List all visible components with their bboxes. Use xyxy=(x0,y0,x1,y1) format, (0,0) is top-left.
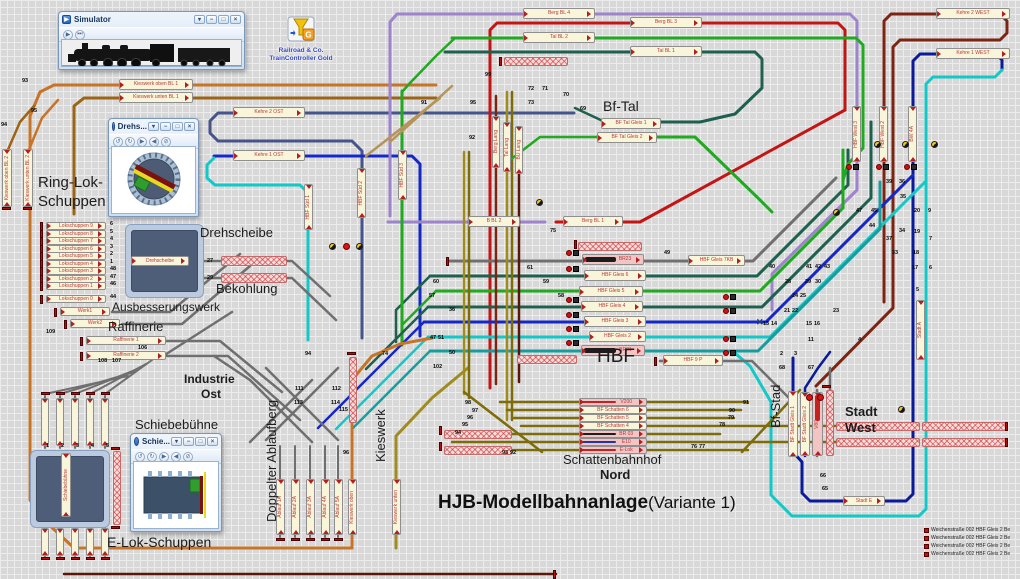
legend-row[interactable]: Weichenstraße 002 HBF Gleis 2 Be xyxy=(924,550,1010,558)
buffer-stop xyxy=(86,392,95,395)
track-block[interactable] xyxy=(836,438,920,447)
legend-row[interactable]: Weichenstraße 002 HBF Gleis 2 Be xyxy=(924,526,1010,534)
track-block[interactable] xyxy=(517,355,577,364)
block-label: B BL 2 xyxy=(487,219,502,224)
turnout-number: 23 xyxy=(833,308,839,314)
block-entry-marker xyxy=(664,358,671,364)
block-label: Stadt E xyxy=(856,499,872,504)
signal-icon[interactable] xyxy=(833,209,840,216)
block-exit-marker xyxy=(306,222,312,229)
signal-red-icon[interactable] xyxy=(343,243,350,250)
track-block[interactable] xyxy=(71,398,79,446)
track-block-lokschuppen-7[interactable]: Lokschuppen 7 xyxy=(46,237,106,245)
turnout-number: 102 xyxy=(433,364,442,370)
signal-icon[interactable] xyxy=(874,141,881,148)
turnout-number: 3 xyxy=(794,351,797,357)
block-label: HBF Süd 1 xyxy=(306,195,311,219)
block-exit-marker xyxy=(615,219,622,225)
block-label: Lokschuppen 1 xyxy=(59,284,93,289)
track-block-kehre-2-west[interactable]: Kehre 2 WEST xyxy=(936,8,1010,19)
area-label-nord: Nord xyxy=(600,467,630,482)
occupancy-indicator-icon xyxy=(846,164,852,170)
track-block-lokschuppen-0[interactable]: Lokschuppen 0 xyxy=(46,295,106,303)
simulator-window-title: Simulator xyxy=(74,15,193,24)
track-block-bf-stadt-gleis-1[interactable]: BF Stadt Gleis 1 xyxy=(788,391,798,457)
block-exit-marker xyxy=(653,121,660,127)
track-block-kieswerk-oben-bl-2[interactable]: Kieswerk oben BL 2 xyxy=(2,149,12,207)
toolbar-button-3[interactable]: ◀ xyxy=(149,137,159,147)
buffer-stop xyxy=(439,426,442,435)
turnout-number: 4 xyxy=(91,443,94,449)
window-menu-button[interactable]: ▾ xyxy=(171,437,182,446)
block-exit-marker xyxy=(25,199,31,206)
window-close-button[interactable]: × xyxy=(230,15,241,24)
block-label: HBF Süd 2 xyxy=(359,181,364,205)
area-label-ring-lok-: Ring-Lok- xyxy=(38,174,103,191)
track-block-werk1[interactable]: Werk1 xyxy=(60,307,110,316)
track-block[interactable] xyxy=(41,528,49,556)
turnout-number: 97 xyxy=(472,408,478,414)
track-block-v80[interactable]: V80 xyxy=(812,392,823,456)
track-block-b-bl-2[interactable]: B BL 2 xyxy=(468,216,520,227)
toolbar-button-4[interactable]: ⊘ xyxy=(183,452,193,462)
track-block-br-03[interactable]: BR 03 xyxy=(579,430,647,438)
turnout-number: 115 xyxy=(339,407,348,413)
buffer-stop xyxy=(40,282,43,291)
block-indicator[interactable] xyxy=(566,250,579,256)
route-flag-icon xyxy=(924,552,929,557)
track-block-hbf-9-p[interactable]: HBF 9 P xyxy=(663,355,723,366)
block-exit-marker xyxy=(87,548,93,555)
area-label-raffinerie: Raffinerie xyxy=(108,319,163,334)
block-exit-marker xyxy=(638,273,645,279)
transfer-titlebar[interactable]: Schie... ▾−□× xyxy=(131,434,221,449)
track-block-berg-bl-3[interactable]: Berg BL 3 xyxy=(630,17,702,28)
turnout-number: 107 xyxy=(112,358,121,364)
turnout-number: 48 xyxy=(110,266,116,272)
track-segment-10[interactable] xyxy=(556,110,845,222)
track-block-kehre-1-west[interactable]: Kehre 1 WEST xyxy=(936,48,1010,59)
block-indicator[interactable] xyxy=(566,297,579,303)
block-entry-marker xyxy=(87,529,93,536)
track-block-ablauf-4a[interactable]: Ablauf 4A xyxy=(321,479,330,535)
block-exit-marker xyxy=(802,448,808,455)
track-segment-13[interactable] xyxy=(926,70,1002,462)
block-entry-marker xyxy=(580,289,587,295)
track-segment-25[interactable] xyxy=(430,182,880,351)
track-block-bw-4a[interactable]: BW 4A xyxy=(908,106,917,162)
track-block-drehscheibe[interactable]: Drehscheibe xyxy=(131,256,189,266)
track-block-kieswerk-unten-bl-1[interactable]: Kieswerk unten BL 1 xyxy=(119,92,193,103)
block-exit-marker xyxy=(854,154,860,161)
block-entry-marker xyxy=(57,529,63,536)
block-indicator[interactable] xyxy=(846,164,859,170)
track-segment-56[interactable] xyxy=(160,312,232,358)
turnout-number: 74 xyxy=(382,351,388,357)
block-label: Ablauf 5A xyxy=(336,496,341,518)
track-block-bf-tal-gleis-1[interactable]: BF Tal Gleis 1 xyxy=(601,118,661,129)
brake-indicator-icon xyxy=(730,336,736,342)
locomotive-icon xyxy=(582,449,616,451)
block-label: V200 xyxy=(620,400,632,405)
locomotive-icon xyxy=(582,441,616,443)
turntable-window[interactable]: Drehs... ▾−□× ↺↻▶◀⊘ xyxy=(108,118,199,217)
block-label: Tal BL 1 xyxy=(657,49,675,54)
buffer-stop xyxy=(41,557,50,560)
block-entry-marker xyxy=(61,309,68,315)
buffer-stop xyxy=(291,538,300,541)
block-entry-marker xyxy=(585,273,592,279)
buffer-stop xyxy=(54,308,57,317)
block-entry-marker xyxy=(42,529,48,536)
block-entry-marker xyxy=(602,121,609,127)
area-label-industrie: Industrie xyxy=(184,372,235,386)
turnout-number: 96 xyxy=(467,415,473,421)
track-block-stadt-e[interactable]: Stadt E xyxy=(843,496,885,506)
track-block[interactable] xyxy=(56,528,64,556)
turnout-number: 92 xyxy=(510,450,516,456)
track-block-lokschuppen-5[interactable]: Lokschuppen 5 xyxy=(46,252,106,260)
track-block[interactable] xyxy=(504,57,568,66)
track-block-hbf-süd-2[interactable]: HBF Süd 2 xyxy=(357,168,366,218)
track-block-kieswerk-oben[interactable]: Kieswerk oben xyxy=(348,479,357,535)
block-exit-marker xyxy=(910,154,916,161)
track-block-lokschuppen-3[interactable]: Lokschuppen 3 xyxy=(46,267,106,275)
block-exit-marker xyxy=(98,296,105,302)
block-exit-marker xyxy=(42,548,48,555)
block-label: Lokschuppen 3 xyxy=(59,269,93,274)
legend-row-label: Weichenstraße 002 HBF Gleis 2 Be xyxy=(931,551,1010,557)
track-block-ablauf-3a[interactable]: Ablauf 3A xyxy=(306,479,315,535)
block-entry-marker xyxy=(469,219,476,225)
occupancy-indicator-icon xyxy=(566,266,572,272)
track-block-bf-stadt-gleis-2[interactable]: BF Stadt Gleis 2 xyxy=(800,392,810,456)
area-label-e-lok-schuppen: E-Lok-Schuppen xyxy=(107,534,211,550)
block-label: Tal Lang xyxy=(505,138,510,157)
turnout-number: 108 xyxy=(98,358,107,364)
track-block-hbf-gleis-5[interactable]: HBF Gleis 5 xyxy=(579,286,643,297)
track-block[interactable] xyxy=(41,398,49,446)
area-label-west: West xyxy=(845,420,876,435)
toolbar-button-0[interactable]: ↺ xyxy=(113,137,123,147)
block-label: BR23 xyxy=(619,257,632,262)
legend-row[interactable]: Weichenstraße 002 HBF Gleis 2 Be xyxy=(924,542,1010,550)
block-entry-marker xyxy=(359,169,365,176)
track-segment-6[interactable] xyxy=(207,158,308,340)
track-segment-23[interactable] xyxy=(424,175,913,322)
route-legend: Weichenstraße 002 HBF Gleis 2 BeWeichens… xyxy=(924,526,1010,558)
legend-row-label: Weichenstraße 002 HBF Gleis 2 Be xyxy=(931,535,1010,541)
block-label: Lokschuppen 4 xyxy=(59,262,93,267)
block-entry-marker xyxy=(590,334,597,340)
block-entry-marker xyxy=(57,399,63,406)
track-block[interactable] xyxy=(56,398,64,446)
track-block-hbf-gleis-6[interactable]: HBF Gleis 6 xyxy=(584,270,646,281)
track-block[interactable] xyxy=(922,438,1006,447)
window-close-button[interactable]: × xyxy=(184,122,195,131)
signal-icon[interactable] xyxy=(356,243,363,250)
traincontroller-desktop-icon[interactable]: G Railroad & Co. TrainController Gold xyxy=(255,16,347,63)
track-block-hbf-gleis-7kb[interactable]: HBF Gleis 7KB xyxy=(688,255,745,266)
signal-icon[interactable] xyxy=(536,199,543,206)
track-block-e10[interactable]: E10 xyxy=(579,438,647,446)
buffer-stop xyxy=(101,392,110,395)
block-label: BF Stadt Gleis 1 xyxy=(791,406,796,442)
block-label: HBF 9 P xyxy=(684,358,703,363)
toolbar-button-1[interactable]: ↻ xyxy=(147,452,157,462)
track-block[interactable] xyxy=(922,422,1006,431)
buffer-stop xyxy=(1005,438,1008,447)
block-entry-marker xyxy=(937,11,944,17)
transfer-table-graphic xyxy=(134,462,219,528)
block-label: Stadt A xyxy=(918,322,923,338)
buffer-stop xyxy=(654,357,657,366)
block-label: HBF Gleis 2 xyxy=(604,334,631,339)
track-block[interactable] xyxy=(113,451,121,525)
brake-indicator-icon xyxy=(853,164,859,170)
block-exit-marker xyxy=(63,509,69,516)
window-maximize-button[interactable]: □ xyxy=(218,15,229,24)
turnout-number: 65 xyxy=(822,486,828,492)
crossing-icon[interactable]: ✕ xyxy=(756,318,764,327)
window-menu-button[interactable]: ▾ xyxy=(148,122,159,131)
window-close-button[interactable]: × xyxy=(207,437,218,446)
turnout-number: 99 xyxy=(485,72,491,78)
track-block-hbf-gleis-3[interactable]: HBF Gleis 3 xyxy=(584,316,646,327)
track-block[interactable] xyxy=(221,256,287,266)
block-indicator[interactable] xyxy=(566,326,579,332)
track-block-berg-bl-1[interactable]: Berg BL 1 xyxy=(563,216,623,227)
toolbar-button-2[interactable]: ▶ xyxy=(137,137,147,147)
track-block-bf-schatten-4[interactable]: BF Schatten 4 xyxy=(579,422,647,430)
track-block-kehre-1-ost[interactable]: Kehre 1 OST xyxy=(233,150,305,161)
turntable-window-title: Drehs... xyxy=(118,122,147,131)
buffer-stop xyxy=(56,557,65,560)
turnout-number: 9 xyxy=(928,208,931,214)
block-label: BF Schatten 6 xyxy=(597,408,629,413)
turnout-number: 36 xyxy=(899,179,905,185)
track-block-tal-lang[interactable]: Tal Lang xyxy=(503,122,511,172)
track-block-bü-lang[interactable]: BÜ Lang xyxy=(515,126,523,174)
block-entry-marker xyxy=(87,338,94,344)
toolbar-button-2[interactable]: ▶ xyxy=(159,452,169,462)
transfer-view[interactable] xyxy=(133,461,219,529)
turnout-number: 21 xyxy=(784,308,790,314)
block-label: Lokschuppen 9 xyxy=(59,224,93,229)
signal-icon[interactable] xyxy=(329,243,336,250)
track-block-ablauf-2a[interactable]: Ablauf 2A xyxy=(291,479,300,535)
block-exit-marker xyxy=(649,135,656,141)
block-entry-marker xyxy=(631,20,638,26)
track-block-v200[interactable]: V200 xyxy=(579,398,647,406)
window-minimize-button[interactable]: − xyxy=(206,15,217,24)
svg-text:G: G xyxy=(305,31,311,40)
turnout-number: 16 xyxy=(814,321,820,327)
block-exit-marker xyxy=(359,210,365,217)
track-block-lokschuppen-1[interactable]: Lokschuppen 1 xyxy=(46,282,106,290)
track-block[interactable] xyxy=(349,357,357,423)
track-block-tal-bl-2[interactable]: Tal BL 2 xyxy=(523,32,595,43)
turnout-number: 47 xyxy=(430,335,436,341)
block-entry-marker xyxy=(42,399,48,406)
block-entry-marker xyxy=(102,399,108,406)
turnout-number: 94 xyxy=(1,122,7,128)
block-entry-marker xyxy=(585,319,592,325)
block-exit-marker xyxy=(881,154,887,161)
window-maximize-button[interactable]: □ xyxy=(195,437,206,446)
locomotive-icon xyxy=(582,433,616,435)
window-maximize-button[interactable]: □ xyxy=(172,122,183,131)
signal-icon[interactable] xyxy=(898,406,905,413)
block-label: Kieswerk oben xyxy=(350,491,355,524)
block-exit-marker xyxy=(293,527,299,534)
track-block-kieswerk-unten[interactable]: Kieswerk unten xyxy=(392,479,401,535)
track-segment-33[interactable] xyxy=(352,351,430,429)
occupancy-indicator-icon xyxy=(723,336,729,342)
track-block-hbf-gleis-2[interactable]: HBF Gleis 2 xyxy=(589,331,646,342)
track-block-schiebebühne[interactable]: Schiebebühne xyxy=(61,453,71,517)
track-block[interactable] xyxy=(578,242,642,251)
track-block[interactable] xyxy=(86,528,94,556)
track-block-hbf-west-2[interactable]: HBF West 2 xyxy=(879,106,888,162)
block-entry-marker xyxy=(308,480,314,487)
block-exit-marker xyxy=(185,82,192,88)
signal-icon[interactable] xyxy=(902,141,909,148)
buffer-stop xyxy=(64,320,67,329)
track-block-bf-schatten-5[interactable]: BF Schatten 5 xyxy=(579,414,647,422)
track-block-tal-bl-1[interactable]: Tal BL 1 xyxy=(630,46,702,57)
block-indicator[interactable] xyxy=(723,308,736,314)
toolbar-button-3[interactable]: ◀ xyxy=(171,452,181,462)
occupancy-indicator-icon xyxy=(566,250,572,256)
toolbar-button-1[interactable]: ↻ xyxy=(125,137,135,147)
block-exit-marker xyxy=(516,166,522,173)
block-entry-marker xyxy=(47,223,54,229)
track-block-ablauf-5a[interactable]: Ablauf 5A xyxy=(334,479,343,535)
track-block-kieswerk-oben-bl-1[interactable]: Kieswerk oben BL 1 xyxy=(119,79,193,90)
block-exit-marker xyxy=(102,309,109,315)
block-entry-marker xyxy=(120,95,127,101)
turnout-number: 4 xyxy=(110,236,113,242)
buffer-stop xyxy=(111,447,120,450)
track-block-kehre-2-ost[interactable]: Kehre 2 OST xyxy=(233,107,305,118)
area-label-schiebebühne: Schiebebühne xyxy=(135,417,218,432)
block-label: BF Schatten 5 xyxy=(597,416,629,421)
window-menu-button[interactable]: ▾ xyxy=(194,15,205,24)
track-block-raffinerie-1[interactable]: Raffinerie 1 xyxy=(86,336,166,345)
block-exit-marker xyxy=(635,304,642,310)
turnout-number: 19 xyxy=(914,229,920,235)
transfer-table-window[interactable]: Schie... ▾−□× ↺↻▶◀⊘ xyxy=(130,433,222,532)
block-exit-marker xyxy=(493,160,499,167)
block-indicator[interactable] xyxy=(566,340,579,346)
signal-icon[interactable] xyxy=(931,141,938,148)
track-block[interactable] xyxy=(826,390,834,456)
block-entry-marker xyxy=(293,480,299,487)
window-minimize-button[interactable]: − xyxy=(160,122,171,131)
block-indicator[interactable] xyxy=(566,266,579,272)
track-block[interactable] xyxy=(101,398,109,446)
block-entry-marker xyxy=(564,219,571,225)
track-block-bf-tal-gleis-2[interactable]: BF Tal Gleis 2 xyxy=(597,132,657,143)
track-block-berg-bl-4[interactable]: Berg BL 4 xyxy=(523,8,595,19)
block-indicator[interactable] xyxy=(723,294,736,300)
simulator-titlebar[interactable]: ▶ Simulator ▾−□× xyxy=(59,12,244,27)
block-indicator[interactable] xyxy=(904,164,917,170)
block-label: Lokschuppen 8 xyxy=(59,232,93,237)
track-block[interactable] xyxy=(71,528,79,556)
legend-row[interactable]: Weichenstraße 002 HBF Gleis 2 Be xyxy=(924,534,1010,542)
track-block-hbf-süd-1[interactable]: HBF Süd 1 xyxy=(304,184,313,230)
toolbar-button-0[interactable]: ▶ xyxy=(63,30,73,40)
block-indicator[interactable] xyxy=(723,336,736,342)
block-entry-marker xyxy=(63,454,69,461)
block-label: Kieswerk unten BL 1 xyxy=(133,95,179,100)
trackplan-canvas[interactable]: HJB-Modellbahnanlage (Variante 1) Weiche… xyxy=(0,0,1020,579)
turnout-number: 29 xyxy=(805,279,811,285)
block-exit-marker xyxy=(694,49,701,55)
transfer-window-controls: ▾−□× xyxy=(170,437,218,446)
turnout-number: 60 xyxy=(433,279,439,285)
track-block-hbf-süd-3[interactable]: HBF Süd 3 xyxy=(398,150,407,200)
layout-title-variant: (Variante 1) xyxy=(648,493,736,513)
track-block-berg-lang[interactable]: Berg Lang xyxy=(492,116,500,168)
track-block[interactable] xyxy=(86,398,94,446)
toolbar-button-1[interactable]: ⏭ xyxy=(75,30,85,40)
buffer-stop xyxy=(446,257,449,266)
block-label: Kieswerk unten xyxy=(394,490,399,524)
window-minimize-button[interactable]: − xyxy=(183,437,194,446)
turnout-number: 73 xyxy=(528,100,534,106)
block-indicator[interactable] xyxy=(723,350,736,356)
buffer-stop xyxy=(553,570,556,579)
signal-red-icon[interactable] xyxy=(817,394,824,401)
track-block-br23[interactable]: BR23 xyxy=(582,254,644,265)
block-indicator[interactable] xyxy=(876,164,889,170)
simulator-window[interactable]: ▶ Simulator ▾−□× ▶⏭ xyxy=(58,11,245,70)
brake-indicator-icon xyxy=(730,350,736,356)
block-indicator[interactable] xyxy=(566,312,579,318)
track-segment-45[interactable] xyxy=(597,137,772,212)
track-block-kieswerk-unten-bl-2[interactable]: Kieswerk unten BL 2 xyxy=(23,149,33,207)
toolbar-button-0[interactable]: ↺ xyxy=(135,452,145,462)
track-block-lokschuppen-9[interactable]: Lokschuppen 9 xyxy=(46,222,106,230)
signal-red-icon[interactable] xyxy=(806,394,813,401)
track-block-stadt-a[interactable]: Stadt A xyxy=(916,300,925,360)
track-block-hbf-gleis-4[interactable]: HBF Gleis 4 xyxy=(581,301,643,312)
block-label: Ablauf 4A xyxy=(323,496,328,518)
block-entry-marker xyxy=(120,82,127,88)
track-segment-35[interactable] xyxy=(396,368,468,548)
toolbar-button-4[interactable]: ⊘ xyxy=(161,137,171,147)
track-block-bf-schatten-6[interactable]: BF Schatten 6 xyxy=(579,406,647,414)
turntable-titlebar[interactable]: Drehs... ▾−□× xyxy=(109,119,198,134)
turnout-number: 7 xyxy=(929,236,932,242)
turnout-number: 4 xyxy=(858,337,861,343)
track-segment-31[interactable] xyxy=(318,322,424,428)
turnout-number: 68 xyxy=(779,365,785,371)
turnout-number: 94 xyxy=(455,430,461,436)
track-block-hbf-west-3[interactable]: HBF West 3 xyxy=(852,106,861,162)
route-flag-icon xyxy=(924,536,929,541)
block-label: Ablauf 3A xyxy=(308,496,313,518)
block-exit-marker xyxy=(350,527,356,534)
block-entry-marker xyxy=(47,268,54,274)
track-segment-47[interactable] xyxy=(510,137,597,160)
block-entry-marker xyxy=(87,353,94,359)
turnout-number: 5 xyxy=(916,287,919,293)
turntable-view[interactable] xyxy=(111,146,196,214)
